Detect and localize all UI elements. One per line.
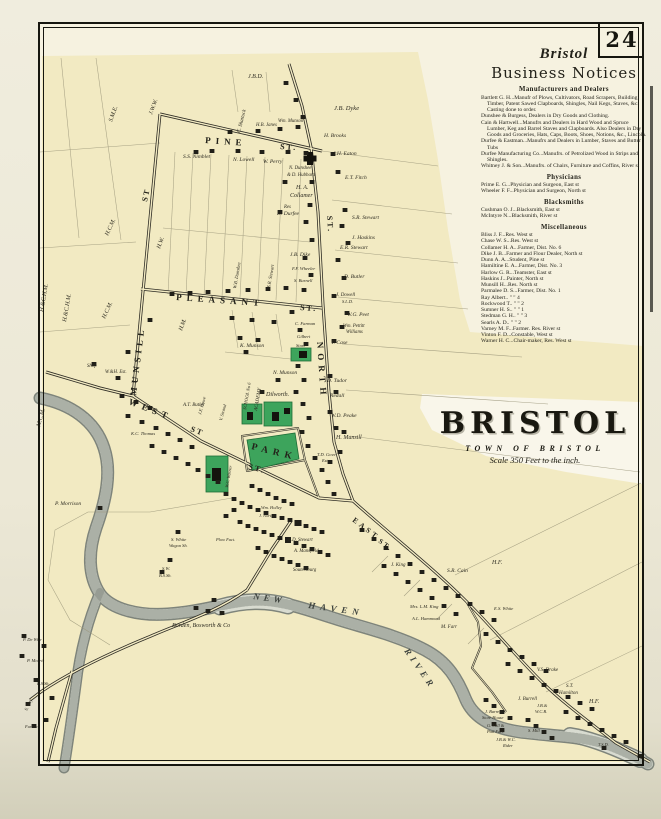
- building: [302, 544, 307, 548]
- building: [288, 560, 293, 564]
- place-label: C. Farman: [295, 321, 316, 326]
- building: [246, 288, 251, 292]
- place-label: J.B. Dike: [290, 252, 311, 258]
- place-label: W.C.B.: [535, 709, 547, 714]
- place-label: E.D. Stewart: [287, 538, 313, 543]
- building: [120, 394, 125, 398]
- building: [294, 98, 299, 102]
- notice-entry: McIntyre N...Blacksmith, River st: [481, 213, 647, 219]
- place-label: J. Haskins: [352, 235, 375, 241]
- place-label: W.&H. Est.: [105, 370, 127, 375]
- place-label: S. White: [171, 537, 186, 542]
- business-notices-panel: Bristol Business Notices Manufacturers a…: [481, 46, 647, 345]
- building: [304, 524, 309, 528]
- place-label: H.B. Janes: [255, 123, 277, 128]
- building: [98, 506, 103, 510]
- place-label: Hamilton: [558, 691, 578, 696]
- notices-section: PhysiciansPrime E. G...Physician and Sur…: [481, 174, 647, 195]
- place-label: Plow Fact.: [215, 537, 235, 542]
- notices-section-heading: Physicians: [481, 174, 647, 181]
- map-scale: Scale 350 Feet to the inch.: [425, 455, 645, 465]
- place-label: & D. Hubbard: [287, 173, 316, 178]
- building: [296, 563, 301, 567]
- building: [532, 662, 537, 666]
- building: [154, 426, 159, 430]
- building: [206, 474, 211, 478]
- building: [310, 238, 315, 242]
- place-label: P. Morris: [26, 658, 44, 663]
- building: [278, 536, 283, 540]
- building: [304, 220, 309, 224]
- map-title: BRISTOL: [425, 406, 645, 441]
- place-label: D. Tudor: [326, 378, 348, 384]
- building: [262, 530, 267, 534]
- building: [600, 728, 605, 732]
- building: [542, 730, 547, 734]
- building: [186, 462, 191, 466]
- building: [550, 736, 555, 740]
- building: [140, 420, 145, 424]
- building: [174, 456, 179, 460]
- building: [518, 669, 523, 673]
- place-label: A.L. Hammond: [411, 616, 441, 621]
- building: [312, 527, 317, 531]
- building: [42, 644, 47, 648]
- place-label: Redall: [329, 393, 345, 399]
- building: [298, 328, 303, 332]
- building: [212, 598, 217, 602]
- place-label: Collamer: [290, 193, 313, 199]
- place-label: J.B.D.: [248, 74, 263, 80]
- street-label: ST.: [300, 303, 318, 313]
- building: [456, 594, 461, 598]
- place-label: K. Munson: [239, 343, 264, 349]
- building: [343, 208, 348, 212]
- place-label: W.G. Peet: [347, 312, 369, 318]
- building: [276, 378, 281, 382]
- building: [484, 632, 489, 636]
- place-label: W. Perry: [263, 159, 283, 165]
- building: [578, 701, 583, 705]
- building: [258, 488, 263, 492]
- building: [294, 390, 299, 394]
- building: [256, 129, 261, 133]
- place-label: H. A.: [295, 185, 308, 191]
- building: [278, 127, 283, 131]
- place-label: H. Munsill: [335, 435, 362, 441]
- building: [196, 468, 201, 472]
- place-label: B.S.Sh.: [159, 573, 172, 578]
- place-label: S.T.: [566, 684, 574, 689]
- building: [240, 501, 245, 505]
- building: [336, 258, 341, 262]
- building: [280, 557, 285, 561]
- building: [190, 445, 195, 449]
- building: [334, 426, 339, 430]
- place-label: Mrs. L.M. King: [409, 604, 439, 609]
- place-label: Pail Fact.: [486, 729, 505, 734]
- building: [590, 707, 595, 711]
- building: [210, 149, 215, 153]
- place-label: T.S.D.: [598, 742, 609, 747]
- place-label: P. De Wier: [22, 637, 42, 642]
- building: [264, 550, 269, 554]
- notice-entry: Durfee & Eastman...Manufrs and Dealers i…: [481, 138, 647, 151]
- building: [290, 502, 295, 506]
- building: [442, 604, 447, 608]
- place-label: J.B. Dyke: [334, 105, 359, 112]
- street-label: ST.: [325, 216, 335, 234]
- building: [320, 468, 325, 472]
- building: [230, 316, 235, 320]
- building: [256, 508, 261, 512]
- place-label: E.T. Fitch: [344, 175, 367, 181]
- building: [50, 696, 55, 700]
- map-title-block: BRISTOL TOWN OF BRISTOL Scale 350 Feet t…: [425, 406, 645, 465]
- place-label: H. Brooks: [323, 133, 346, 139]
- building: [408, 562, 413, 566]
- place-label: J. Burrell: [518, 697, 538, 702]
- building: [284, 286, 289, 290]
- building: [126, 414, 131, 418]
- building: [508, 716, 513, 720]
- place-label: Wm. Pettitt: [343, 324, 365, 329]
- building: [166, 432, 171, 436]
- building: [248, 505, 253, 509]
- building: [250, 484, 255, 488]
- building: [320, 530, 325, 534]
- place-label: J.B.& W.C.: [496, 737, 516, 742]
- place-label: Rider: [502, 743, 513, 748]
- building: [342, 430, 347, 434]
- building: [418, 588, 423, 592]
- building: [624, 740, 629, 744]
- building: [340, 224, 345, 228]
- place-label: Res: [283, 205, 291, 210]
- building: [506, 662, 511, 666]
- notice-entry: Durfee Manufacturing Co...Manufrs. of Pe…: [481, 151, 647, 164]
- building: [332, 492, 337, 496]
- building: [612, 734, 617, 738]
- building: [20, 654, 25, 658]
- building: [300, 430, 305, 434]
- place-label: S.L.D.: [342, 299, 353, 304]
- building: [238, 336, 243, 340]
- building: [454, 612, 459, 616]
- building: [326, 480, 331, 484]
- building: [420, 570, 425, 574]
- building: [326, 553, 331, 557]
- building: [296, 125, 301, 129]
- building: [530, 676, 535, 680]
- place-label: S.S. Nimblet: [183, 154, 211, 160]
- notice-entry: Bartlett G. H...Manufr of Plows, Cultiva…: [481, 95, 647, 114]
- building: [492, 704, 497, 708]
- building: [224, 514, 229, 518]
- building: [526, 718, 531, 722]
- building: [254, 527, 259, 531]
- place-label: S. Mill: [528, 728, 540, 733]
- place-label: E.S. White: [493, 606, 513, 611]
- building: [406, 580, 411, 584]
- place-label: D. Durfee: [276, 210, 300, 217]
- building: [468, 602, 473, 606]
- notices-section: Manufacturers and DealersBartlett G. H..…: [481, 86, 647, 170]
- place-label: Gilbert: [297, 334, 311, 339]
- building: [432, 578, 437, 582]
- building: [484, 698, 489, 702]
- building: [288, 518, 293, 522]
- building: [270, 533, 275, 537]
- place-label: Borden, Bosworth & Co: [172, 623, 230, 629]
- building: [296, 364, 301, 368]
- place-label: Williams: [346, 330, 363, 335]
- place-label: S.R. Stewart: [352, 215, 380, 221]
- notices-section-heading: Manufacturers and Dealers: [481, 86, 647, 93]
- building: [256, 546, 261, 550]
- building: [396, 554, 401, 558]
- place-label: A. Mansfield: [293, 549, 319, 554]
- building: [148, 318, 153, 322]
- place-label: S.W.: [162, 566, 170, 571]
- building: [244, 350, 249, 354]
- place-label: E.R. Stewart: [339, 245, 368, 251]
- building: [444, 586, 449, 590]
- building: [301, 402, 306, 406]
- place-label: F.F. Wheeler: [291, 266, 315, 271]
- building: [232, 508, 237, 512]
- building: [178, 438, 183, 442]
- building: [194, 606, 199, 610]
- building: [307, 416, 312, 420]
- building: [542, 683, 547, 687]
- building: [236, 149, 241, 153]
- notices-section-heading: Blacksmiths: [481, 199, 647, 206]
- place-label: J.B.&: [537, 703, 548, 708]
- building: [295, 520, 302, 526]
- place-label: J. Norton: [259, 513, 276, 518]
- page-number-box: 24: [598, 22, 644, 58]
- place-label: J. Dowell: [336, 293, 356, 298]
- page-number: 24: [605, 27, 638, 52]
- place-label: T. Case: [331, 340, 348, 346]
- building: [638, 754, 643, 758]
- place-label: Store House: [482, 715, 503, 720]
- building: [430, 596, 435, 600]
- building: [496, 640, 501, 644]
- place-label: B.S.Sh.: [37, 681, 50, 686]
- building: [126, 350, 131, 354]
- building: [44, 718, 49, 722]
- place-label: H.F.: [588, 699, 599, 705]
- building: [266, 492, 271, 496]
- building: [280, 516, 285, 520]
- place-label: Wm. Holley: [261, 505, 282, 510]
- building: [302, 378, 307, 382]
- building: [206, 609, 211, 613]
- place-label: J. Barrett: [485, 709, 502, 714]
- building: [520, 655, 525, 659]
- building: [232, 497, 237, 501]
- notices-title: Business Notices: [481, 64, 647, 82]
- place-label: J. King: [391, 563, 406, 568]
- notices-section: MiscellaneousBliss J. F...Res. West stCh…: [481, 224, 647, 345]
- place-label: K.C. Thomas: [130, 431, 155, 436]
- place-label: V.S. Drake: [537, 668, 559, 673]
- building: [290, 310, 295, 314]
- building: [272, 554, 277, 558]
- building: [310, 180, 315, 184]
- building: [588, 722, 593, 726]
- notice-entry: Wheeler F. F...Physician and Surgeon, No…: [481, 188, 647, 194]
- place-label: Est.: [321, 458, 329, 463]
- place-label: S.R. Cain: [447, 568, 468, 574]
- place-label: M. Farr: [440, 625, 457, 630]
- building: [338, 450, 343, 454]
- building: [228, 130, 233, 134]
- building: [256, 338, 261, 342]
- building: [168, 558, 173, 562]
- notices-section: BlacksmithsCushman O. J...Blacksmith, Ea…: [481, 199, 647, 220]
- street-label: ST.: [280, 142, 298, 152]
- place-label: Soutersburg: [293, 568, 317, 573]
- place-label: Wagon Sh.: [169, 543, 188, 548]
- building: [576, 716, 581, 720]
- place-label: Wm. Munson: [278, 119, 304, 124]
- building: [246, 524, 251, 528]
- place-label: G. Mill &: [487, 723, 505, 728]
- building: [216, 480, 221, 484]
- building: [308, 203, 313, 207]
- building: [309, 273, 314, 277]
- building: [306, 444, 311, 448]
- building: [170, 292, 175, 296]
- place-label: Shop: [87, 364, 97, 369]
- building: [492, 618, 497, 622]
- building: [224, 492, 229, 496]
- place-label: N. Munson: [272, 370, 297, 376]
- notices-sections: Manufacturers and DealersBartlett G. H..…: [481, 86, 647, 345]
- building: [394, 572, 399, 576]
- building: [382, 564, 387, 568]
- building: [272, 320, 277, 324]
- building: [220, 611, 225, 615]
- building: [282, 499, 287, 503]
- building: [554, 689, 559, 693]
- place-label: P. Morrison: [54, 501, 81, 507]
- building: [176, 530, 181, 534]
- building: [508, 648, 513, 652]
- place-label: Store: [296, 343, 306, 348]
- building: [116, 376, 121, 380]
- building: [283, 180, 288, 184]
- building: [480, 610, 485, 614]
- building: [260, 150, 265, 154]
- place-label: W.D. Peake: [331, 413, 357, 419]
- place-label: N. Dunshee: [288, 166, 312, 171]
- notice-entry: Cain & Hartwell...Manufrs and Dealers in…: [481, 120, 647, 139]
- place-label: Dilworth.: [265, 392, 289, 398]
- building: [274, 496, 279, 500]
- place-label: Furnace: [24, 724, 40, 729]
- place-label: N. Lowell: [232, 157, 255, 163]
- building: [564, 710, 569, 714]
- notices-section-heading: Miscellaneous: [481, 224, 647, 231]
- building: [304, 151, 309, 155]
- notice-entry: Whitney J. & Son...Manufrs. of Chairs, F…: [481, 163, 647, 169]
- place-label: H.F.: [491, 560, 502, 566]
- building: [250, 318, 255, 322]
- building: [238, 520, 243, 524]
- building: [284, 81, 289, 85]
- building: [302, 288, 307, 292]
- building: [150, 444, 155, 448]
- place-label: J.H. Eaton: [333, 151, 357, 157]
- building: [336, 170, 341, 174]
- place-label: T.D. Gove: [317, 452, 336, 457]
- place-label: D. Butler: [343, 274, 365, 280]
- place-label: S. Burnell: [294, 278, 313, 283]
- notice-entry: Warner H. C...Chair-maker, Res. West st: [481, 338, 647, 344]
- building: [162, 450, 167, 454]
- map-subtitle: TOWN OF BRISTOL: [425, 444, 645, 453]
- building: [226, 289, 231, 293]
